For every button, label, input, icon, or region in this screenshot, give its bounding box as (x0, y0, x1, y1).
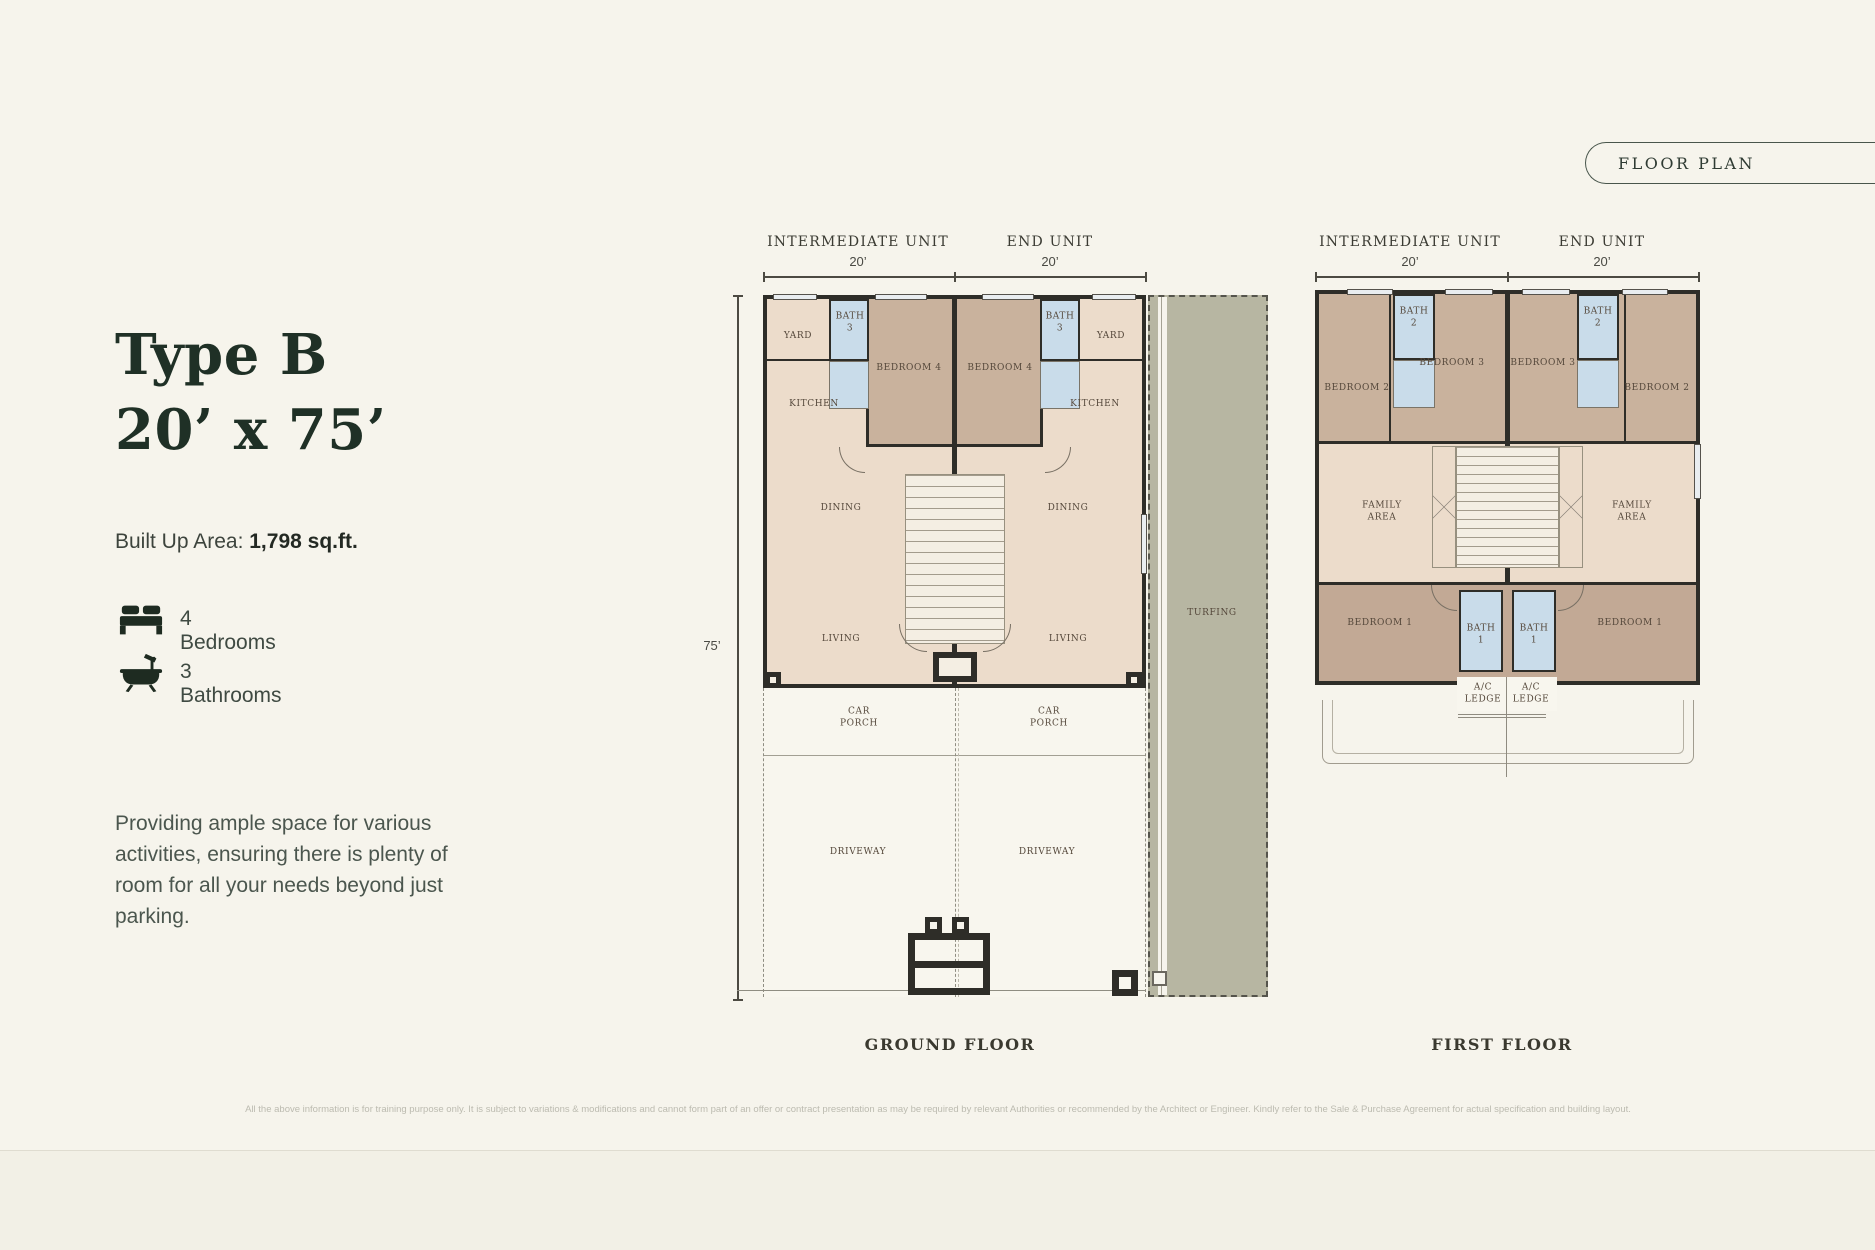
room-label-dining-left: DINING (821, 503, 862, 515)
room-label-bath1-right: BATH 1 (1516, 623, 1552, 646)
window (1445, 289, 1493, 295)
ff-intermediate-unit-label: INTERMEDIATE UNIT (1319, 234, 1501, 250)
roof-center-line (1506, 677, 1507, 777)
gf-end-unit-width: 20’ (1041, 254, 1058, 269)
dim-tick (733, 999, 743, 1001)
floor-plan-badge: FLOOR PLAN (1585, 142, 1875, 184)
ff-end-unit-width: 20’ (1593, 254, 1610, 269)
gf-end-unit-label: END UNIT (1007, 234, 1094, 250)
dim-tick (1315, 272, 1317, 282)
entrance-door-frame (933, 652, 977, 682)
room-label-bath2-right: BATH 2 (1581, 306, 1615, 329)
window (1347, 289, 1393, 295)
window (1694, 444, 1701, 499)
bath2-lobby-right (1577, 360, 1619, 408)
corner-pillar (765, 672, 781, 688)
gf-intermediate-unit-width: 20’ (849, 254, 866, 269)
built-up-value: 1,798 sq.ft. (249, 530, 358, 553)
ff-end-unit-label: END UNIT (1559, 234, 1646, 250)
window (773, 294, 817, 300)
gate-post (925, 917, 942, 934)
window (875, 294, 927, 300)
room-label-bath1-left: BATH 1 (1463, 623, 1499, 646)
built-up-label: Built Up Area: (115, 530, 243, 553)
dim-tick (1698, 272, 1700, 282)
bedroom-band-bottom (1319, 585, 1696, 681)
ground-floor-caption: GROUND FLOOR (865, 1035, 1036, 1054)
dim-tick (1145, 272, 1147, 282)
room-label-yard-left: YARD (784, 331, 812, 343)
door-arc (983, 624, 1011, 652)
feature-bathrooms-label: 3 Bathrooms (180, 660, 282, 708)
room-label-living-left: LIVING (822, 634, 860, 646)
ground-floor-plan: YARD BATH 3 BEDROOM 4 KITCHEN DINING LIV… (763, 295, 1146, 688)
window (1522, 289, 1570, 295)
utility-marker (1152, 971, 1167, 986)
feature-bedrooms-label: 4 Bedrooms (180, 607, 276, 655)
gf-depth-dimension-line (737, 295, 739, 1000)
first-floor-plan: BEDROOM 2 BATH 2 BEDROOM 3 FAMILY AREA B… (1315, 290, 1700, 685)
fence-line (1158, 297, 1167, 995)
room-label-family-right: FAMILY AREA (1606, 500, 1658, 523)
wall (1624, 294, 1626, 442)
window (1141, 514, 1147, 574)
room-label-kitchen-left: KITCHEN (789, 399, 839, 411)
room-label-bedroom4-left: BEDROOM 4 (876, 363, 941, 375)
side-gate-pillar (1112, 970, 1138, 996)
dim-tick (733, 295, 743, 297)
room-label-yard-right: YARD (1097, 331, 1125, 343)
room-label-kitchen-right: KITCHEN (1070, 399, 1120, 411)
room-label-carporch-right: CAR PORCH (1019, 706, 1079, 729)
room-label-family-left: FAMILY AREA (1356, 500, 1408, 523)
roof-outline-inner (1332, 700, 1684, 754)
room-label-bedroom2-right: BEDROOM 2 (1624, 383, 1689, 395)
room-label-driveway-right: DRIVEWAY (1019, 847, 1075, 859)
door-arc (1045, 447, 1071, 473)
dim-tick (954, 272, 956, 282)
door-arc (899, 624, 927, 652)
wall (1389, 294, 1391, 442)
room-label-driveway-left: DRIVEWAY (830, 847, 886, 859)
dim-tick (1507, 272, 1509, 282)
page-title: Type B 20’ x 75’ (115, 318, 387, 468)
door-arc (839, 447, 865, 473)
room-label-bedroom3-right: BEDROOM 3 (1510, 358, 1575, 370)
turfing-strip: TURFING (1148, 295, 1268, 997)
gf-depth-label: 75’ (703, 638, 720, 653)
gf-intermediate-unit-label: INTERMEDIATE UNIT (767, 234, 949, 250)
room-label-bedroom3-left: BEDROOM 3 (1419, 358, 1484, 370)
room-label-dining-right: DINING (1048, 503, 1089, 515)
room-label-living-right: LIVING (1049, 634, 1087, 646)
room-label-bedroom1-right: BEDROOM 1 (1597, 618, 1662, 630)
stair-rail (1559, 446, 1583, 568)
description-text: Providing ample space for various activi… (115, 808, 475, 932)
gate-bar (908, 961, 990, 968)
room-label-bedroom4-right: BEDROOM 4 (967, 363, 1032, 375)
room-label-bedroom2-left: BEDROOM 2 (1324, 383, 1389, 395)
staircase (905, 474, 1005, 644)
staircase (1456, 446, 1559, 568)
corner-pillar (1126, 672, 1142, 688)
wall (767, 359, 829, 361)
bed-icon (118, 602, 164, 643)
first-floor-caption: FIRST FLOOR (1431, 1035, 1572, 1054)
room-label-bath3-right: BATH 3 (1044, 311, 1076, 334)
gate-post (952, 917, 969, 934)
room-label-bath2-left: BATH 2 (1397, 306, 1431, 329)
disclaimer-text: All the above information is for trainin… (245, 1104, 1631, 1115)
ff-intermediate-unit-width: 20’ (1401, 254, 1418, 269)
wall (1080, 359, 1142, 361)
stair-rail (1432, 446, 1456, 568)
title-line1: Type B (115, 318, 387, 393)
room-label-carporch-left: CAR PORCH (829, 706, 889, 729)
built-up-area: Built Up Area: 1,798 sq.ft. (115, 530, 358, 554)
room-label-bedroom1-left: BEDROOM 1 (1347, 618, 1412, 630)
room-label-bath3-left: BATH 3 (834, 311, 866, 334)
bathtub-icon (118, 652, 164, 699)
dim-tick (763, 272, 765, 282)
window (1092, 294, 1136, 300)
ledge-bar (1458, 714, 1546, 718)
badge-label: FLOOR PLAN (1618, 154, 1755, 173)
footer-band (0, 1150, 1875, 1250)
title-line2: 20’ x 75’ (115, 393, 387, 468)
room-label-turfing: TURFING (1187, 608, 1236, 620)
floor-plan-slide: FLOOR PLAN Type B 20’ x 75’ Built Up Are… (0, 0, 1875, 1250)
window (1622, 289, 1668, 295)
window (982, 294, 1034, 300)
